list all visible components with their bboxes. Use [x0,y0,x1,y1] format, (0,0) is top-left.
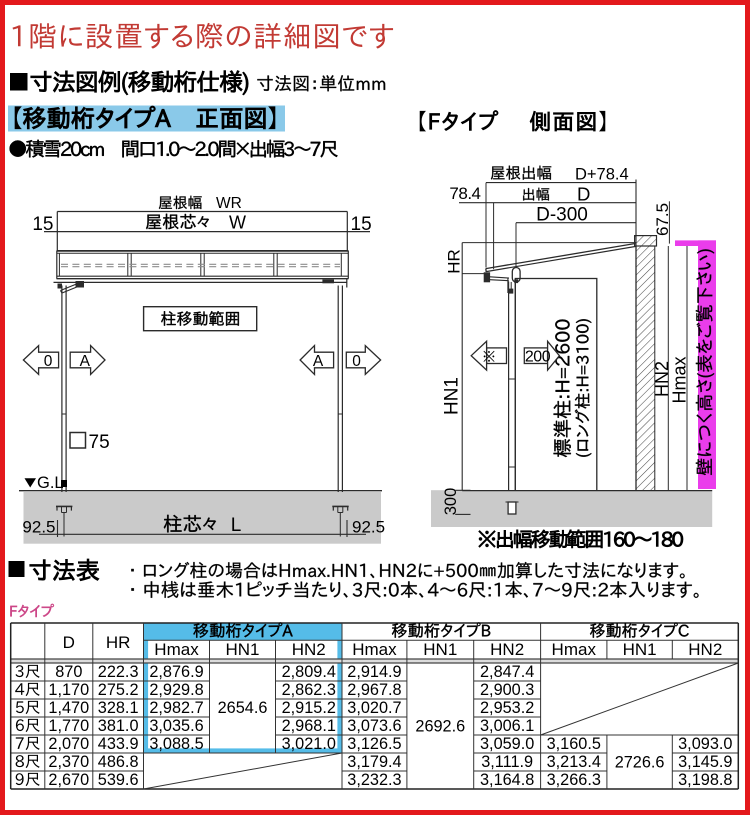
svg-text:381.0: 381.0 [98,717,139,735]
svg-text:3,093.0: 3,093.0 [678,735,732,753]
svg-text:92.5: 92.5 [22,518,55,537]
svg-text:2,915.2: 2,915.2 [282,699,336,717]
svg-text:222.3: 222.3 [98,663,139,681]
svg-text:2,876.9: 2,876.9 [149,663,203,681]
svg-text:3,111.9: 3,111.9 [481,753,533,771]
svg-text:A: A [313,353,324,370]
svg-text:539.6: 539.6 [98,771,139,789]
svg-text:3,059.0: 3,059.0 [480,735,534,753]
svg-text:1,770: 1,770 [48,717,89,735]
svg-text:2692.6: 2692.6 [415,718,465,736]
svg-text:2,929.8: 2,929.8 [149,681,203,699]
svg-text:3,160.5: 3,160.5 [547,735,601,753]
svg-text:486.8: 486.8 [98,753,139,771]
svg-text:1,470: 1,470 [48,699,89,717]
svg-text:HN2: HN2 [292,640,326,659]
svg-text:92.5: 92.5 [352,518,385,537]
svg-text:3,213.4: 3,213.4 [547,753,601,771]
svg-text:G.L: G.L [37,474,64,492]
svg-text:328.1: 328.1 [98,699,139,717]
svg-text:0: 0 [44,353,53,370]
svg-text:2726.6: 2726.6 [615,754,665,772]
svg-text:HR: HR [445,249,464,274]
svg-text:870: 870 [55,663,82,681]
svg-text:2,967.8: 2,967.8 [347,681,401,699]
svg-text:2,370: 2,370 [48,753,89,771]
svg-text:D: D [63,633,75,652]
svg-text:HN1: HN1 [225,640,259,659]
svg-text:2,670: 2,670 [48,771,89,789]
svg-text:2,862.3: 2,862.3 [282,681,336,699]
svg-text:3,179.4: 3,179.4 [347,753,401,771]
svg-text:3,198.8: 3,198.8 [678,771,732,789]
svg-text:2,953.2: 2,953.2 [480,699,534,717]
svg-text:HN2: HN2 [688,640,722,659]
svg-text:HN1: HN1 [423,640,457,659]
svg-text:2,070: 2,070 [48,735,89,753]
svg-text:1,170: 1,170 [48,681,89,699]
svg-text:3,035.6: 3,035.6 [149,717,203,735]
svg-text:3,164.8: 3,164.8 [480,771,534,789]
svg-text:HN1: HN1 [623,640,657,659]
svg-text:Hmax: Hmax [670,356,690,403]
svg-text:WR: WR [216,195,242,212]
svg-text:2,982.7: 2,982.7 [149,699,203,717]
svg-text:3,088.5: 3,088.5 [149,735,203,753]
svg-text:HR: HR [106,633,131,652]
svg-text:L: L [231,515,242,536]
svg-text:Hmax: Hmax [154,640,199,659]
svg-text:A: A [80,353,91,370]
svg-text:15: 15 [32,214,53,235]
svg-text:2654.6: 2654.6 [218,699,268,717]
svg-text:300: 300 [442,488,460,516]
svg-text:275.2: 275.2 [98,681,139,699]
svg-text:2,847.4: 2,847.4 [480,663,534,681]
svg-text:200: 200 [525,349,551,366]
svg-text:0: 0 [352,353,361,370]
svg-text:2,900.3: 2,900.3 [480,681,534,699]
svg-text:3,232.3: 3,232.3 [347,771,401,789]
svg-text:2,968.1: 2,968.1 [282,717,336,735]
svg-text:Hmax: Hmax [352,640,397,659]
svg-text:HN2: HN2 [490,640,524,659]
svg-text:3,021.0: 3,021.0 [282,735,336,753]
svg-text:D: D [577,184,590,205]
svg-text:Hmax: Hmax [552,640,597,659]
svg-text:433.9: 433.9 [98,735,139,753]
svg-text:75: 75 [89,432,110,453]
svg-text:D+78.4: D+78.4 [575,166,629,184]
svg-text:3,145.9: 3,145.9 [678,753,732,771]
svg-text:W: W [229,213,246,233]
svg-text:HN1: HN1 [442,377,463,415]
svg-text:3,126.5: 3,126.5 [347,735,401,753]
svg-text:15: 15 [351,214,372,235]
svg-text:78.4: 78.4 [449,184,480,203]
svg-text:3,073.6: 3,073.6 [347,717,401,735]
svg-text:2,809.4: 2,809.4 [282,663,336,681]
svg-text:3,006.1: 3,006.1 [480,717,534,735]
svg-text:2,914.9: 2,914.9 [347,663,401,681]
svg-text:3,020.7: 3,020.7 [347,699,401,717]
svg-text:3,266.3: 3,266.3 [547,771,601,789]
